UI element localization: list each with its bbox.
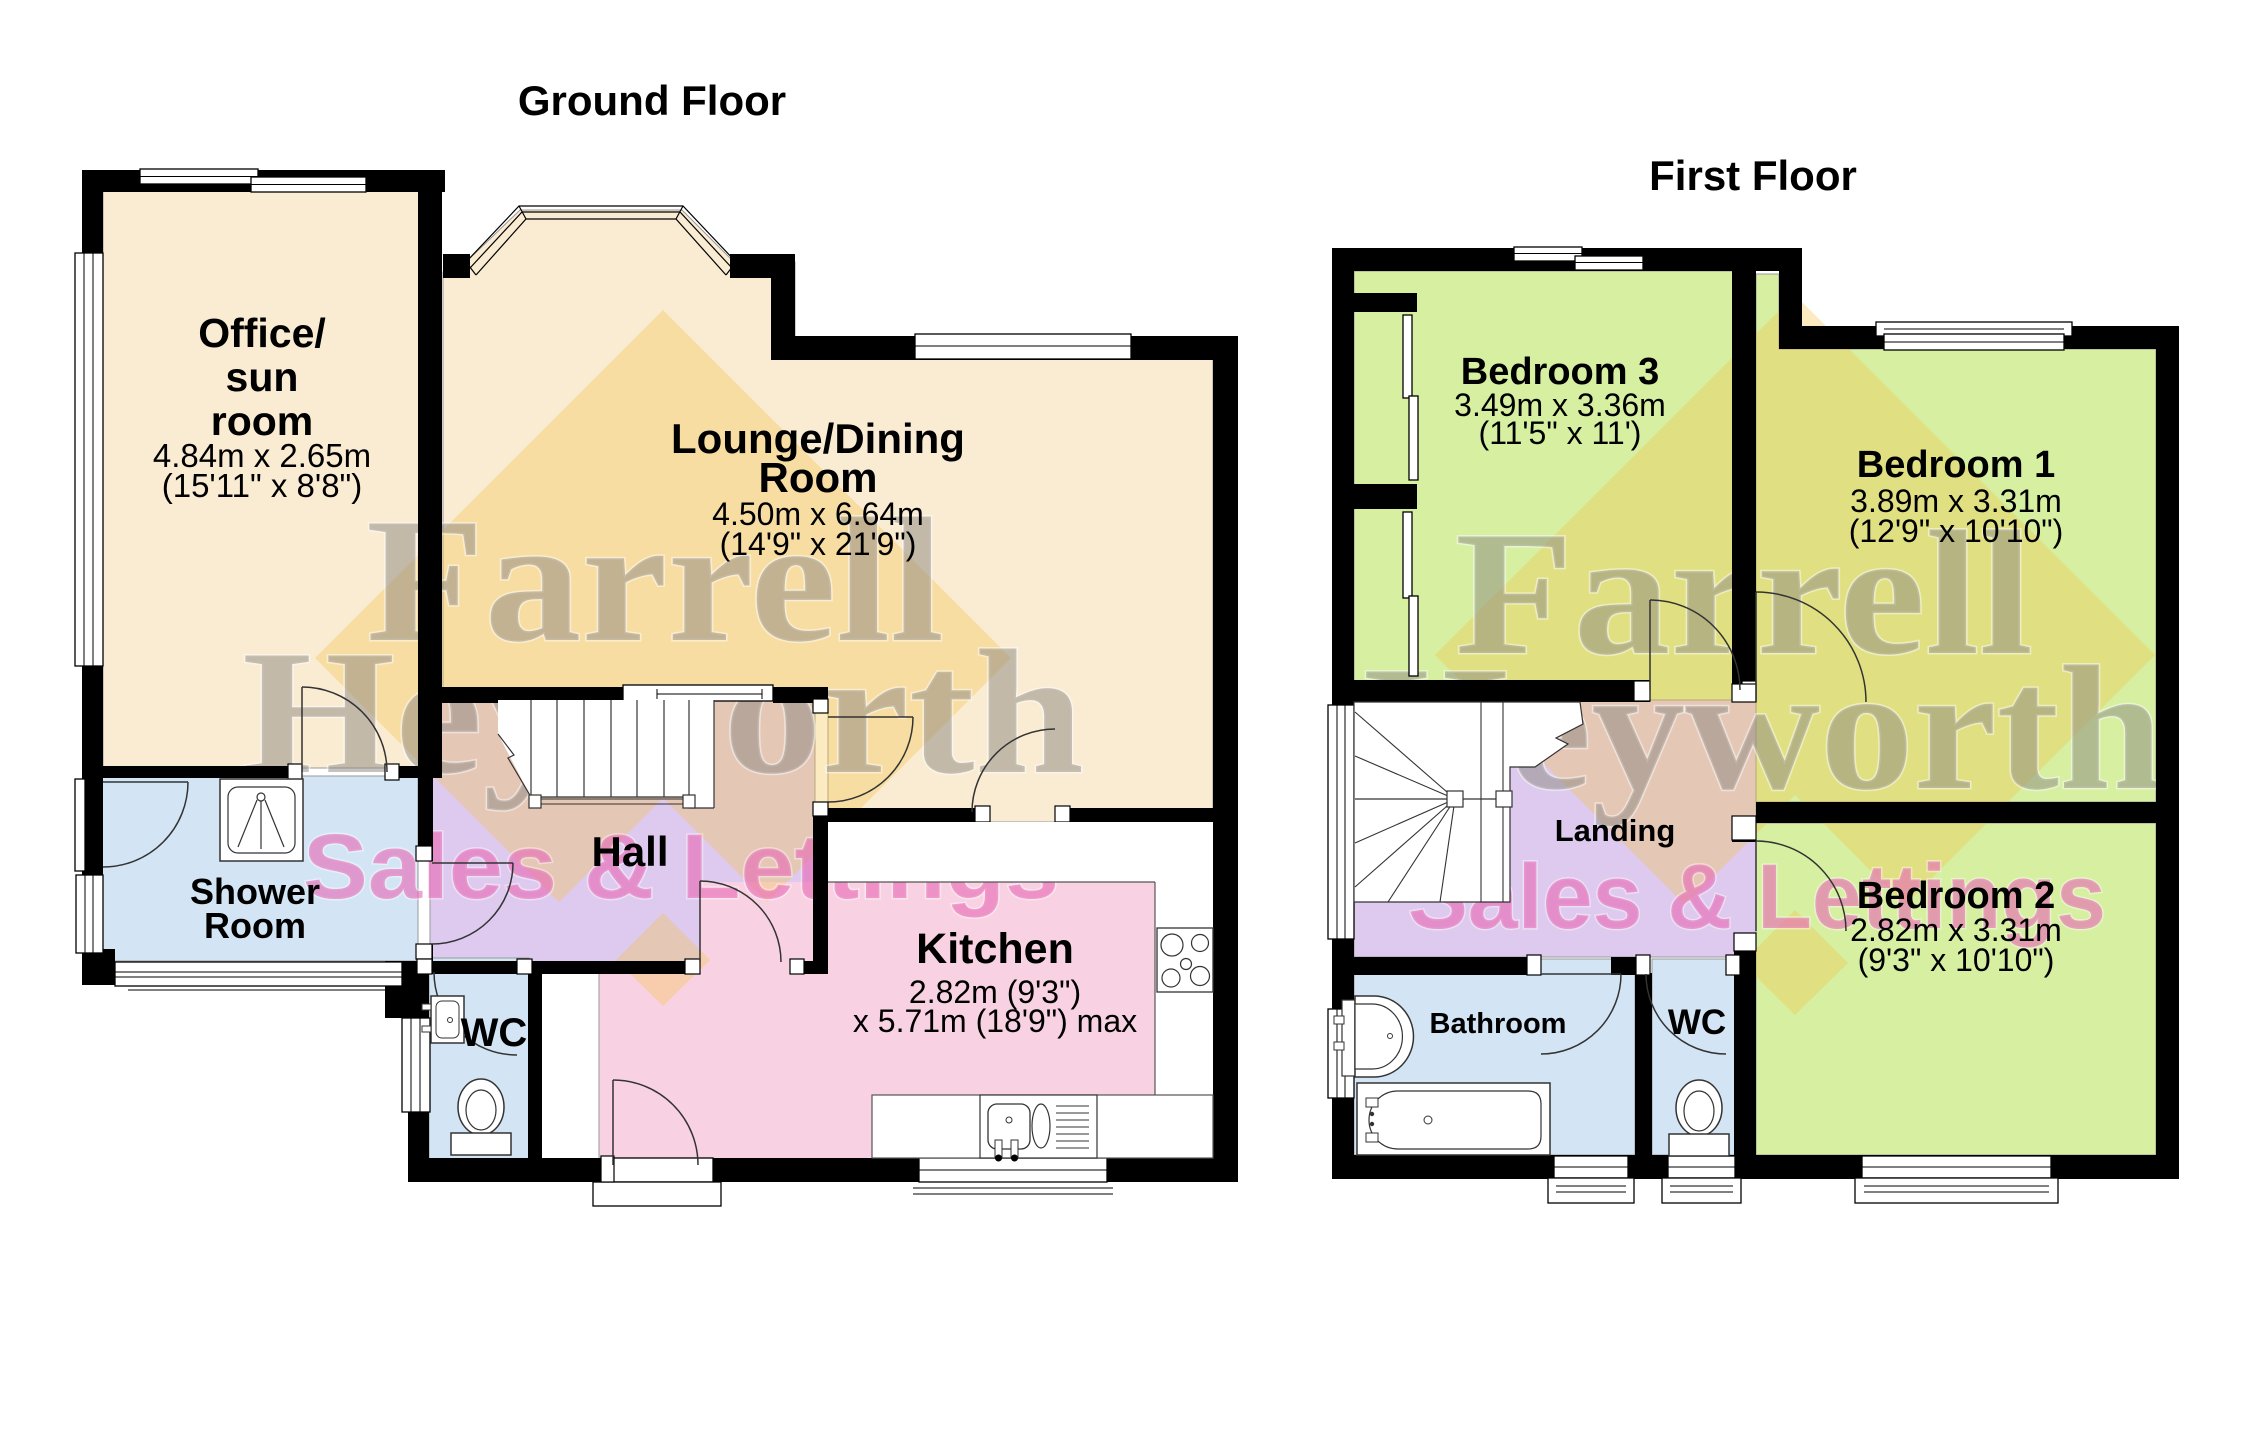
svg-text:First Floor: First Floor [1649,152,1857,199]
svg-text:(9'3" x 10'10"): (9'3" x 10'10") [1858,942,2055,978]
svg-text:Office/: Office/ [198,310,326,356]
svg-text:(12'9" x 10'10"): (12'9" x 10'10") [1849,513,2064,549]
svg-text:(14'9" x 21'9"): (14'9" x 21'9") [720,526,917,562]
svg-text:Kitchen: Kitchen [916,925,1074,973]
svg-text:WC: WC [1668,1003,1726,1042]
svg-text:Landing: Landing [1555,813,1676,848]
svg-text:(15'11" x 8'8"): (15'11" x 8'8") [162,467,363,504]
svg-text:sun: sun [226,354,299,400]
svg-text:x 5.71m (18'9") max: x 5.71m (18'9") max [853,1003,1137,1039]
svg-text:(11'5" x 11'): (11'5" x 11') [1479,415,1642,451]
svg-text:WC: WC [461,1011,528,1055]
svg-text:Ground Floor: Ground Floor [518,77,786,124]
svg-text:Bathroom: Bathroom [1430,1008,1567,1040]
svg-text:Room: Room [759,454,878,501]
svg-text:Room: Room [204,905,306,946]
svg-text:Hall: Hall [591,828,668,875]
svg-text:Bedroom 2: Bedroom 2 [1857,875,2055,917]
svg-text:Bedroom 1: Bedroom 1 [1857,444,2055,486]
